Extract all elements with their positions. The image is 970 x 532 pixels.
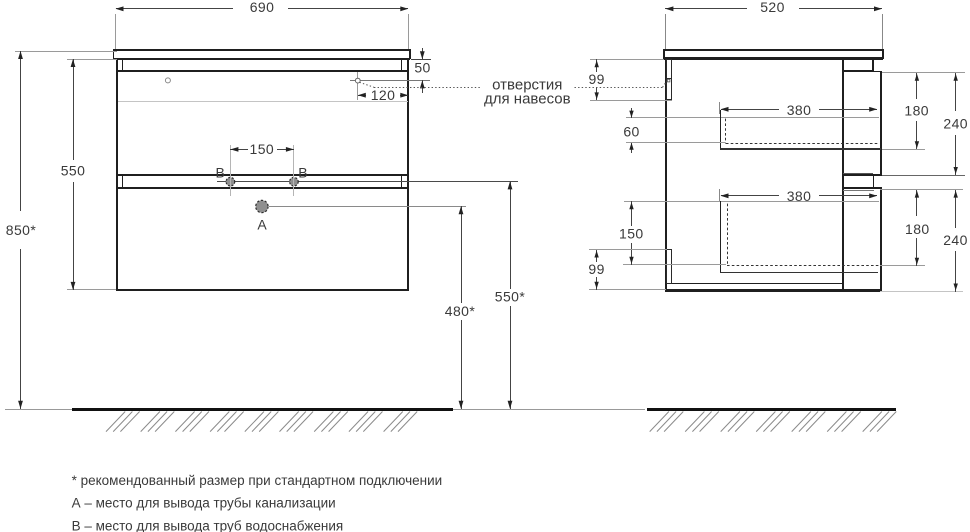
svg-text:* рекомендованный размер при с: * рекомендованный размер при стандартном… <box>72 473 443 488</box>
svg-text:240: 240 <box>943 116 968 132</box>
svg-text:для навесов: для навесов <box>484 90 571 107</box>
svg-text:В: В <box>216 165 225 181</box>
svg-text:520: 520 <box>760 0 785 15</box>
svg-text:690: 690 <box>250 0 275 15</box>
svg-text:60: 60 <box>623 124 639 140</box>
svg-text:180: 180 <box>905 221 930 237</box>
svg-text:240: 240 <box>943 232 968 248</box>
svg-text:В: В <box>298 165 307 181</box>
svg-text:380: 380 <box>787 102 812 118</box>
svg-text:150: 150 <box>250 141 275 157</box>
svg-text:850*: 850* <box>6 222 37 238</box>
svg-text:А – место для вывода трубы кан: А – место для вывода трубы канализации <box>72 496 336 511</box>
svg-text:550: 550 <box>61 162 86 178</box>
svg-text:150: 150 <box>619 226 644 242</box>
svg-text:120: 120 <box>371 87 396 103</box>
svg-text:180: 180 <box>904 103 929 119</box>
svg-text:380: 380 <box>787 188 812 204</box>
svg-text:50: 50 <box>414 60 430 76</box>
svg-text:480*: 480* <box>445 303 476 319</box>
svg-text:В – место для вывода труб водо: В – место для вывода труб водоснабжения <box>72 519 344 532</box>
svg-text:99: 99 <box>589 71 605 87</box>
svg-text:А: А <box>257 217 267 233</box>
svg-text:550*: 550* <box>495 289 526 305</box>
svg-text:99: 99 <box>588 261 604 277</box>
